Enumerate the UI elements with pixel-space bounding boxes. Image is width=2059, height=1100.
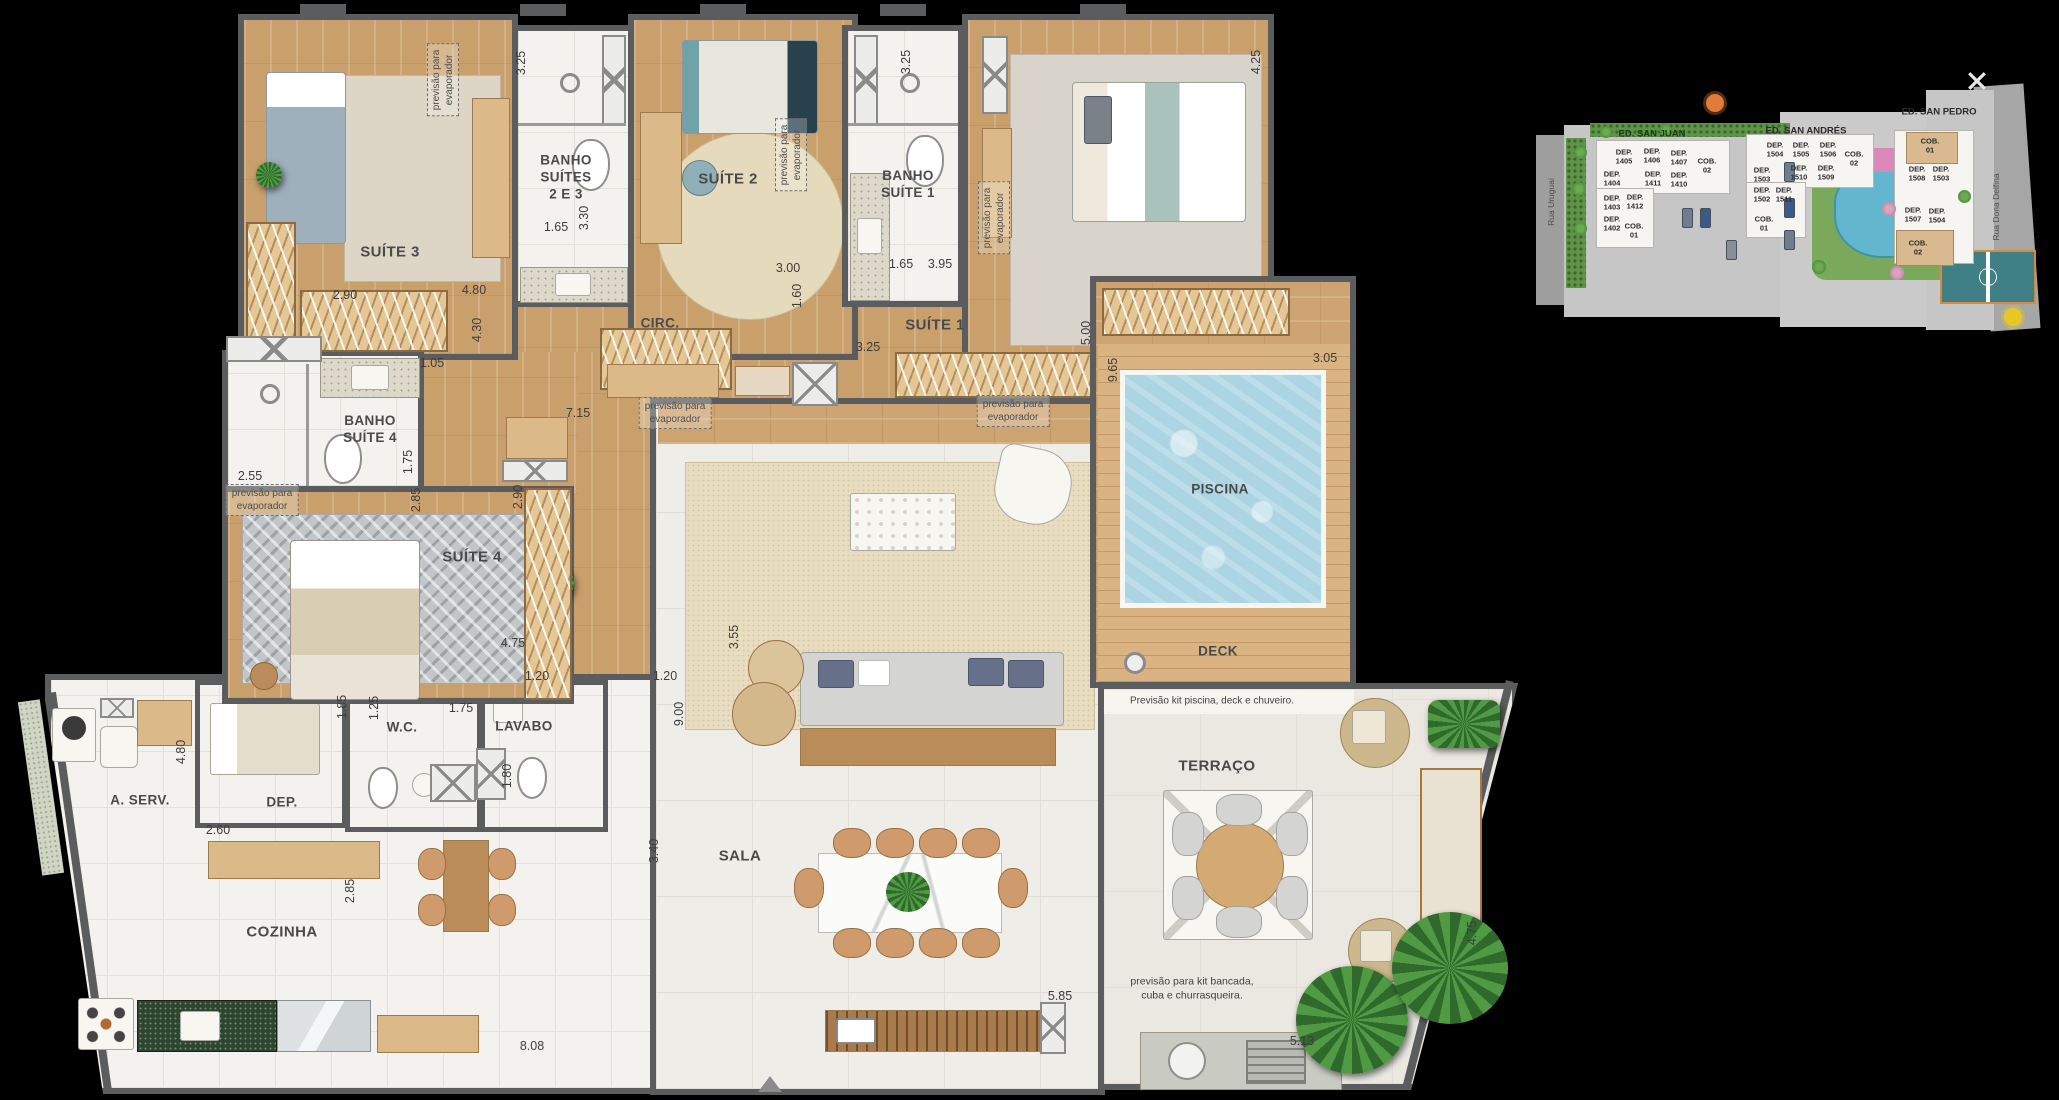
chaise (850, 493, 956, 551)
dim-label: 7.15 (566, 406, 590, 420)
chair (418, 848, 446, 880)
hall-console (506, 417, 568, 459)
evaporator-note: previsão para evaporador (226, 484, 299, 516)
bed (266, 72, 346, 244)
toilet (368, 767, 398, 809)
chair (962, 928, 1000, 958)
room-label-wc: W.C. (387, 720, 418, 737)
car (1726, 240, 1737, 260)
laundry-tank (100, 726, 138, 768)
wall-stub (520, 4, 566, 16)
console (607, 364, 719, 398)
shower-divider (518, 123, 626, 126)
unit-label: DEP. 1504 (1767, 141, 1784, 158)
dim-label: 1.20 (653, 669, 677, 683)
tree (1574, 222, 1587, 235)
glass-cabinet (277, 1000, 371, 1052)
terrace-chair (1276, 876, 1308, 920)
sink (857, 218, 882, 254)
tree (1958, 190, 1971, 203)
lounge-cushion (1352, 710, 1386, 744)
unit-label: DEP. 1510 (1791, 164, 1808, 181)
tree (1600, 126, 1612, 138)
shaft (100, 698, 134, 718)
tree (1572, 182, 1586, 196)
buffet (377, 1015, 479, 1053)
chair (833, 828, 871, 858)
room-label-dep: DEP. (266, 795, 297, 812)
unit-label: DEP. 1411 (1645, 170, 1662, 187)
counter-kit-note: previsão para kit bancada, cuba e churra… (1130, 975, 1253, 1002)
chair (876, 928, 914, 958)
room-label-suite2: SUÍTE 2 (698, 171, 757, 190)
dim-label: 1.75 (449, 701, 473, 715)
shaft (1040, 1002, 1066, 1054)
shaft (502, 460, 568, 482)
dim-label: 1.60 (790, 284, 804, 308)
flower-tree (1882, 202, 1896, 216)
unit-label: DEP. 1410 (1671, 171, 1688, 188)
sofa-pillow (1008, 660, 1044, 688)
bed-pillow (1084, 96, 1112, 144)
room-label-lavabo: LAVABO (495, 719, 552, 736)
building-name: ED. SAN JUAN (1618, 129, 1685, 140)
shower-head-icon (260, 384, 280, 404)
art-frame (836, 1018, 876, 1044)
unit-label: DEP. 1403 (1604, 194, 1621, 211)
shaft (982, 36, 1008, 114)
chair (919, 828, 957, 858)
unit-label: DEP. 1503 (1933, 165, 1950, 182)
wall-stub (880, 4, 926, 16)
bbq-sink (1168, 1042, 1206, 1080)
dim-label: 2.90 (333, 288, 357, 302)
unit-label: COB. 01 (1755, 215, 1774, 232)
dim-label: 3.55 (727, 625, 741, 649)
dim-label: 2.55 (238, 469, 262, 483)
washer-door (62, 716, 86, 740)
dim-label: 2.85 (343, 879, 357, 903)
room-label-suite3: SUÍTE 3 (360, 244, 419, 263)
shower-head-icon (560, 73, 580, 93)
chair (876, 828, 914, 858)
kitchen-counter (208, 841, 380, 879)
room-label-suite1: SUÍTE 1 (905, 317, 964, 336)
dim-label: 3.00 (776, 261, 800, 275)
island-sink (180, 1011, 220, 1041)
dim-label: 4.80 (462, 283, 486, 297)
chair (488, 848, 516, 880)
unit-label: DEP. 1508 (1909, 165, 1926, 182)
closet (895, 352, 1093, 398)
shower-divider (848, 123, 958, 126)
unit-label: DEP. 1503 (1754, 166, 1771, 183)
unit-label: COB. 01 (1625, 222, 1644, 239)
evaporator-note: previsão para evaporador (978, 182, 1010, 255)
room-label-circ: CIRC. (641, 316, 680, 333)
terrace-sofa (1420, 768, 1482, 924)
shower-head-icon (900, 73, 920, 93)
dim-label: 5.00 (1079, 321, 1093, 345)
unit-label: COB. 02 (1845, 150, 1864, 167)
unit-label: DEP. 1505 (1793, 141, 1810, 158)
dim-label: 3.05 (1313, 351, 1337, 365)
room-label-deck: DECK (1198, 644, 1238, 661)
unit-label: DEP. 1412 (1627, 193, 1644, 210)
room-label-suite4: SUÍTE 4 (442, 549, 501, 568)
palm (1296, 966, 1408, 1074)
dim-label: 2.60 (206, 823, 230, 837)
evaporator-note: previsão para evaporador (775, 119, 807, 192)
room-label-banho23: BANHO SUÍTES 2 E 3 (540, 153, 592, 204)
unit-label: COB. 01 (1921, 137, 1940, 154)
wall-stub (1080, 4, 1126, 16)
unit-label: DEP. 1405 (1616, 148, 1633, 165)
unit-label: DEP. 1502 (1754, 186, 1771, 203)
building-name: ED. SAN PEDRO (1902, 107, 1977, 118)
terrace-chair (1276, 812, 1308, 856)
dim-label: 8.08 (520, 1039, 544, 1053)
terrace-table (1196, 822, 1284, 910)
dim-label: 2.85 (409, 488, 423, 512)
room-label-piscina: PISCINA (1191, 482, 1249, 499)
dim-label: 9.65 (1106, 358, 1120, 382)
entry-arrow-icon (758, 1076, 782, 1092)
tv-sideboard (800, 728, 1056, 766)
bed (290, 540, 420, 700)
tree (1812, 260, 1826, 274)
unit-label: DEP. 1504 (1929, 207, 1946, 224)
unit-label: DEP. 1511 (1776, 186, 1793, 203)
dim-label: 3.30 (577, 206, 591, 230)
dim-label: 3.25 (899, 50, 913, 74)
chair (962, 828, 1000, 858)
dim-label: 3.40 (647, 839, 661, 863)
unit-label: DEP. 1506 (1820, 141, 1837, 158)
room-label-sala: SALA (719, 848, 761, 867)
unit-label: DEP. 1404 (1604, 170, 1621, 187)
unit-label: DEP. 1407 (1671, 149, 1688, 166)
sofa-pillow (818, 660, 854, 688)
sink (351, 365, 389, 390)
closet (300, 290, 448, 352)
dim-label: 5.13 (1290, 1034, 1314, 1048)
dim-label: 1.25 (367, 696, 381, 720)
wall-stub (700, 4, 746, 16)
shaft (226, 336, 322, 362)
dim-label: 2.90 (511, 485, 525, 509)
dim-label: 4.75 (501, 636, 525, 650)
pool-shower-icon (1124, 652, 1146, 674)
dim-label: 9.00 (672, 702, 686, 726)
lounge-cushion (1360, 930, 1392, 962)
vanity (320, 358, 420, 398)
unit-label: COB. 02 (1698, 157, 1717, 174)
dim-label: 3.25 (856, 340, 880, 354)
floorplan-canvas: SUÍTE 3 BANHO SUÍTES 2 E 3 SUÍTE 2 BANHO… (0, 0, 2059, 1100)
toilet (517, 757, 547, 799)
terrace-chair (1172, 812, 1204, 856)
dim-label: 4.80 (174, 740, 188, 764)
car (1700, 208, 1711, 228)
sun-icon (1706, 94, 1724, 112)
unit-label: DEP. 1509 (1818, 164, 1835, 181)
tree (1574, 146, 1587, 159)
car (1682, 208, 1693, 228)
closet (246, 222, 296, 352)
shaft (792, 362, 838, 406)
flower-tree (1890, 266, 1904, 280)
dim-label: 1.80 (500, 764, 514, 788)
dim-label: 4.75 (1465, 921, 1479, 945)
dim-label: 4.30 (470, 318, 484, 342)
evaporator-note: previsão para evaporador (977, 395, 1050, 427)
planter (1428, 700, 1500, 748)
vanity (520, 267, 628, 303)
bed (210, 703, 320, 775)
console (735, 366, 790, 396)
street-name: Rua Uruguai (1546, 178, 1556, 226)
dim-label: 1.65 (544, 220, 568, 234)
desk (472, 98, 510, 258)
pool-kit-note: Previsão kit piscina, deck e chuveiro. (1130, 695, 1294, 708)
dim-label: 4.25 (1249, 50, 1263, 74)
evaporator-note: previsão para evaporador (427, 44, 459, 117)
round-rug (656, 132, 844, 320)
suite4-room (222, 486, 574, 704)
sofa-pillow (968, 658, 1004, 686)
unit-label: DEP. 1507 (1905, 206, 1922, 223)
room-label-terraco: TERRAÇO (1179, 758, 1256, 777)
palm (1392, 912, 1508, 1024)
chair (833, 928, 871, 958)
room-label-aserv: A. SERV. (110, 793, 169, 810)
dim-label: 1.75 (401, 450, 415, 474)
kitchen-table (443, 840, 489, 932)
table-plant (886, 872, 930, 912)
terrace-chair (1172, 876, 1204, 920)
shaft (854, 35, 878, 125)
closet (1102, 288, 1290, 336)
street-name: Rua Dona Delfina (1991, 173, 2001, 240)
dim-label: 1.85 (335, 695, 349, 719)
shower-divider (306, 364, 309, 486)
sofa-pillow (858, 660, 890, 686)
unit-label: COB. 02 (1909, 239, 1928, 256)
shaft (430, 764, 476, 802)
shaft (602, 35, 626, 125)
chair (794, 868, 824, 908)
chair (998, 868, 1028, 908)
side-table (732, 682, 796, 746)
chair (488, 894, 516, 926)
sink (555, 273, 591, 296)
dim-label: 3.95 (928, 257, 952, 271)
room-label-banho4: BANHO SUÍTE 4 (343, 413, 397, 447)
wall-stub (300, 4, 346, 16)
hedge (1566, 138, 1586, 288)
dim-label: 1.05 (420, 356, 444, 370)
nightstand (250, 662, 278, 690)
desk (640, 112, 682, 244)
kitchen-island (137, 1000, 277, 1052)
sun-icon (2004, 308, 2022, 326)
evaporator-note: previsão para evaporador (639, 397, 712, 429)
chair (919, 928, 957, 958)
chair (418, 894, 446, 926)
car (1784, 230, 1795, 250)
stove (78, 998, 134, 1050)
dim-label: 1.20 (525, 669, 549, 683)
plant (256, 162, 282, 188)
unit-label: DEP. 1402 (1604, 215, 1621, 232)
dim-label: 5.85 (1048, 989, 1072, 1003)
unit-label: DEP. 1406 (1644, 147, 1661, 164)
room-label-cozinha: COZINHA (246, 924, 317, 943)
dim-label: 1.65 (889, 257, 913, 271)
building-name: ED. SAN ANDRÉS (1766, 126, 1847, 137)
terrace-chair (1216, 794, 1262, 826)
dim-label: 3.25 (514, 51, 528, 75)
terrace-chair (1216, 906, 1262, 938)
room-label-banho1: BANHO SUÍTE 1 (881, 168, 935, 202)
